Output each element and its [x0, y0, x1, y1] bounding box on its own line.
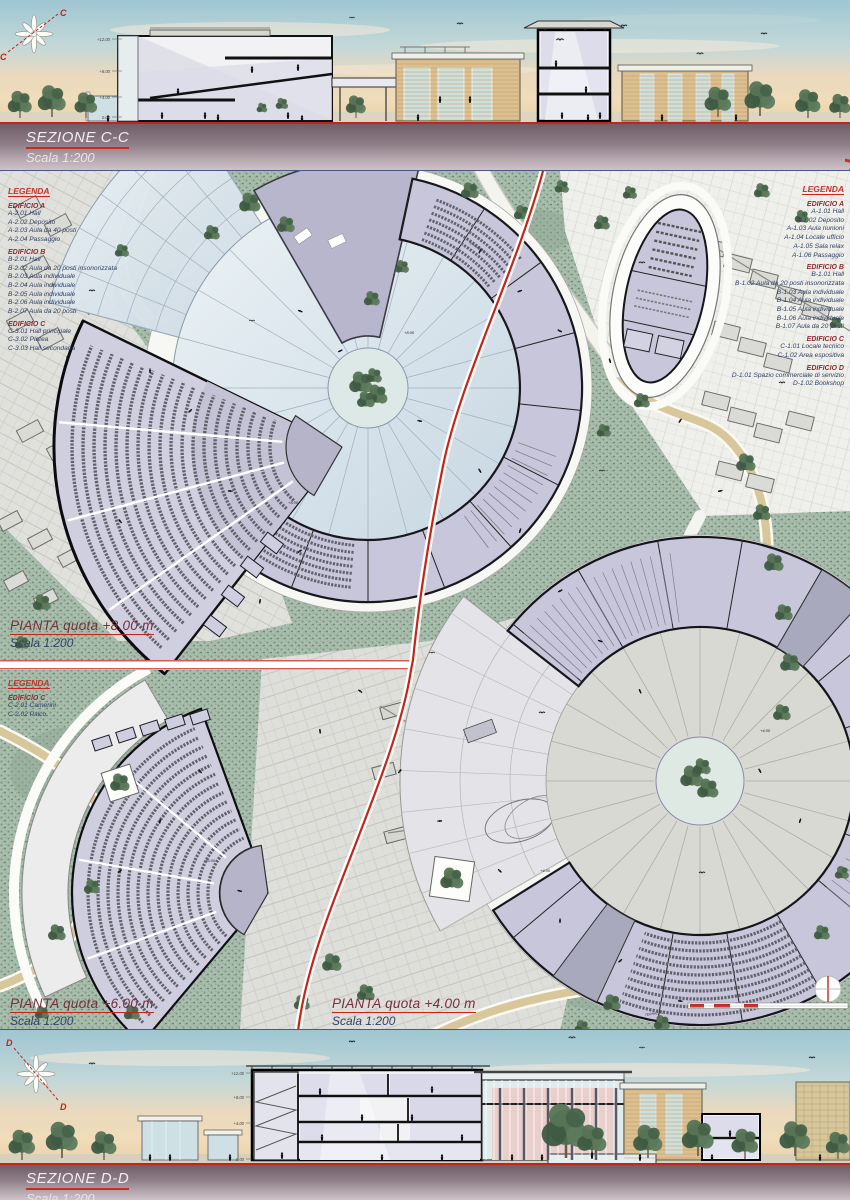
legend-item: A-2.03 Aula da 40 posti: [8, 227, 117, 236]
legend-upper-left: LEGENDA EDIFICIO A A-2.01 Hall A-2.02 De…: [8, 181, 117, 354]
legend-heading: EDIFICIO B: [8, 249, 117, 256]
plan-title-p600: PIANTA quota +6.00 m Scala 1:200: [10, 995, 154, 1028]
section-d-title: SEZIONE D-D: [26, 1170, 129, 1190]
plan-scale-text: Scala 1:200: [332, 1014, 476, 1028]
legend-item: B-2.01 Hall: [8, 256, 117, 265]
legend-title: LEGENDA: [8, 186, 50, 197]
graphic-scale-bar: [688, 1003, 848, 1009]
section-c-titlebar: SEZIONE C-C Scala 1:200: [0, 122, 850, 170]
legend-item: B-2.07 Aula da 20 posti: [8, 308, 117, 317]
legend-item: B-2.04 Aula individuale: [8, 282, 117, 291]
section-d-letter: D: [6, 1038, 13, 1048]
plan-title-p400: PIANTA quota +4.00 m Scala 1:200: [332, 995, 476, 1028]
section-d-band: +12.00 +8.00 +4.00 0.00 D D SEZIONE D-D …: [0, 1030, 850, 1200]
legend-item: C-1.02 Area espositiva: [694, 352, 844, 361]
legend-item: B-2.02 Aula da 20 posti insonorizzata: [8, 265, 117, 274]
level-label: 0.00: [236, 1157, 245, 1162]
legend-upper-right: LEGENDA EDIFICIO A A-1.01 Hall A-1.02 De…: [694, 179, 844, 389]
legend-item: B-1.02 Aula da 20 posti insonorizzata: [694, 280, 844, 289]
site-plans-panel: +8.00 +8.00 +6.00 +4.00 +4.00 TERRAZZO T…: [0, 170, 850, 1030]
legend-item: A-2.01 Hall: [8, 210, 117, 219]
presentation-board: +12.00 +8.00 +4.00 0.00 C C SEZIONE C-C …: [0, 0, 850, 1200]
legend-item: C-2.02 Palco: [8, 711, 56, 720]
plan-title-p800: PIANTA quota +8.00 m Scala 1:200: [10, 617, 154, 650]
legend-item: A-1.02 Deposito: [694, 217, 844, 226]
legend-heading: EDIFICIO C: [8, 321, 117, 328]
legend-item: A-2.02 Deposito: [8, 219, 117, 228]
legend-item: C-3.02 Platea: [8, 336, 117, 345]
section-c-band: +12.00 +8.00 +4.00 0.00 C C SEZIONE C-C …: [0, 0, 850, 170]
legend-item: D-1.01 Spazio commerciale di servizio: [694, 372, 844, 381]
north-indicator-icon: [815, 976, 841, 1002]
plan-title-text: PIANTA quota +6.00 m: [10, 996, 154, 1013]
legend-item: A-1.05 Sala relax: [694, 243, 844, 252]
level-mark: +8.00: [404, 330, 415, 335]
section-d-titlebar: SEZIONE D-D Scala 1:200: [0, 1163, 850, 1200]
legend-item: C-3.03 Hall secondaria: [8, 345, 117, 354]
section-d-scale: Scala 1:200: [26, 1191, 850, 1200]
legend-title: LEGENDA: [802, 184, 844, 195]
legend-item: A-1.06 Passaggio: [694, 252, 844, 261]
legend-item: A-1.04 Locale ufficio: [694, 234, 844, 243]
legend-item: D-1.02 Bookshop: [694, 380, 844, 389]
level-mark: +8.00: [288, 500, 299, 505]
legend-heading: EDIFICIO A: [694, 201, 844, 208]
legend-heading: EDIFICIO B: [694, 264, 844, 271]
level-label: +8.00: [233, 1095, 244, 1100]
legend-item: B-1.01 Hall: [694, 271, 844, 280]
legend-heading: EDIFICIO D: [694, 365, 844, 372]
level-label: +4.00: [233, 1121, 244, 1126]
legend-item: A-1.01 Hall: [694, 208, 844, 217]
section-d-letter: D: [60, 1102, 67, 1112]
plan-title-text: PIANTA quota +4.00 m: [332, 996, 476, 1013]
section-c-title: SEZIONE C-C: [26, 129, 129, 149]
legend-lower-left: LEGENDA EDIFICIO C C-2.01 Camerini C-2.0…: [8, 673, 56, 719]
legend-item: B-1.04 Aula individuale: [694, 297, 844, 306]
plan-title-text: PIANTA quota +8.00 m: [10, 618, 154, 635]
legend-item: A-2.04 Passaggio: [8, 236, 117, 245]
plan-divider: [0, 660, 413, 670]
legend-title: LEGENDA: [8, 678, 50, 689]
legend-item: B-2.06 Aula individuale: [8, 299, 117, 308]
legend-item: B-1.07 Aula da 20 posti: [694, 323, 844, 332]
legend-item: C-2.01 Camerini: [8, 702, 56, 711]
legend-item: B-1.06 Aula individuale: [694, 315, 844, 324]
legend-heading: EDIFICIO C: [694, 336, 844, 343]
level-label: +8.00: [99, 69, 110, 74]
legend-heading: EDIFICIO C: [8, 695, 56, 702]
legend-item: A-1.03 Aula riunioni: [694, 225, 844, 234]
legend-item: B-1.05 Aula individuale: [694, 306, 844, 315]
level-mark: +6.00: [205, 858, 216, 863]
section-c-scale: Scala 1:200: [26, 150, 850, 165]
legend-item: B-1.03 Aula individuale: [694, 289, 844, 298]
level-mark: +4.00: [540, 868, 551, 873]
legend-heading: EDIFICIO A: [8, 203, 117, 210]
section-c-letter: C: [0, 52, 7, 62]
section-c-letter: C: [60, 8, 67, 18]
legend-item: B-2.03 Aula individuale: [8, 273, 117, 282]
level-label: +4.00: [99, 95, 110, 100]
plan-scale-text: Scala 1:200: [10, 636, 154, 650]
level-mark: +4.00: [760, 728, 771, 733]
legend-item: C-1.01 Locale tecnico: [694, 343, 844, 352]
level-label: +12.00: [97, 37, 111, 42]
level-label: 0.00: [102, 115, 111, 120]
legend-item: B-2.05 Aula individuale: [8, 291, 117, 300]
legend-item: C-3.01 Hall principale: [8, 328, 117, 337]
plan-scale-text: Scala 1:200: [10, 1014, 154, 1028]
level-label: +12.00: [231, 1071, 245, 1076]
